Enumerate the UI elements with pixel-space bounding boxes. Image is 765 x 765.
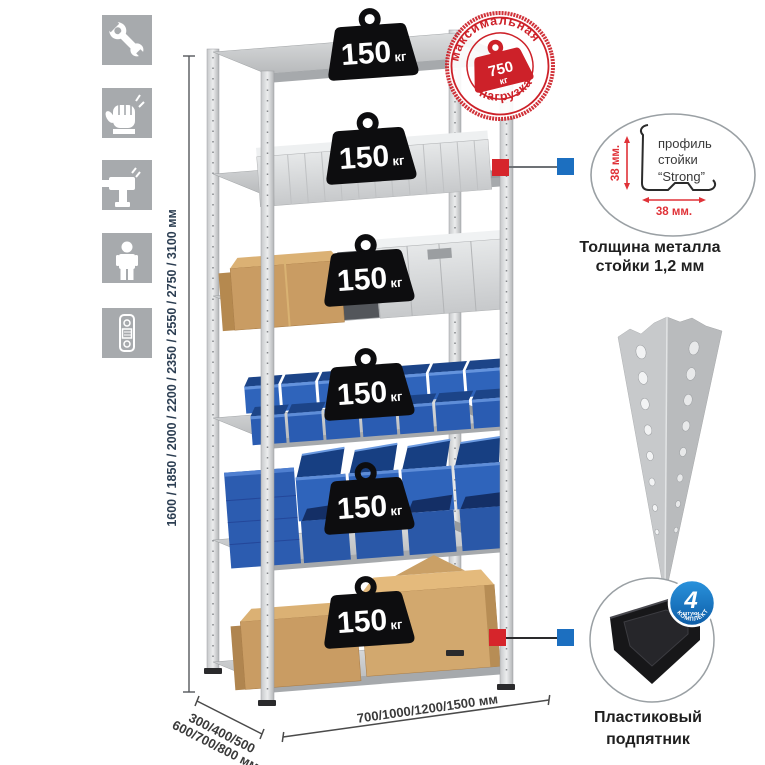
red-marker-bottom [489,629,506,646]
weight-badge-1: 150 кг [324,8,419,81]
weight-unit: кг [392,153,406,169]
profile-detail: 38 мм. 38 мм. профиль стойки “Strong” [591,114,755,236]
profile-label-3: “Strong” [658,169,705,184]
height-dimension: 1600 / 1850 / 2000 / 2200 / 2350 / 2550 … [165,56,195,692]
sidebar-icons [95,15,152,358]
weight-value: 150 [336,262,388,298]
infographic-canvas: 1600 / 1850 / 2000 / 2200 / 2350 / 2550 … [0,0,765,765]
weight-unit: кг [390,389,404,405]
weight-unit: кг [394,49,408,65]
person-icon [102,233,152,283]
profile-dim-vertical: 38 мм. [610,145,622,181]
infographic-svg: 1600 / 1850 / 2000 / 2200 / 2350 / 2550 … [0,0,765,765]
weight-value: 150 [340,36,392,72]
weight-unit: кг [390,275,404,291]
profile-caption-1: Толщина металла [579,239,720,256]
blue-marker-bottom [557,629,574,646]
profile-label-1: профиль [658,136,712,151]
leader-bottom [489,629,574,646]
height-dimension-label: 1600 / 1850 / 2000 / 2200 / 2350 / 2550 … [165,209,179,526]
red-marker-top [492,159,509,176]
leader-top [492,158,574,176]
rack-post-front-right [500,52,513,686]
qty-badge-value: 4 [683,587,697,614]
width-label: 700/1000/1200/1500 мм [356,691,499,726]
profile-dim-horizontal: 38 мм. [656,206,692,218]
weight-badge-2: 150 кг [322,112,417,185]
wrench-icon [102,15,152,65]
rack-post-front-left [261,71,274,703]
angle-post-image [618,317,722,597]
profile-label-2: стойки [658,152,698,167]
foot-caption-2: подпятник [606,731,691,748]
foot-caption-1: Пластиковый [594,709,702,726]
depth-dimension: 300/400/500 600/700/800 мм [170,696,268,765]
blue-marker-top [557,158,574,175]
profile-caption-2: стойки 1,2 мм [596,258,705,275]
weight-value: 150 [336,490,388,526]
weight-unit: кг [390,503,404,519]
weight-value: 150 [336,376,388,412]
weight-unit: кг [390,617,404,633]
gloves-icon [102,88,152,138]
weight-value: 150 [338,140,390,176]
spirit-level-icon [102,308,152,358]
weight-value: 150 [336,604,388,640]
width-dimension: 700/1000/1200/1500 мм [282,691,549,742]
weight-badge-4: 150 кг [320,348,415,421]
drill-icon [95,160,152,210]
